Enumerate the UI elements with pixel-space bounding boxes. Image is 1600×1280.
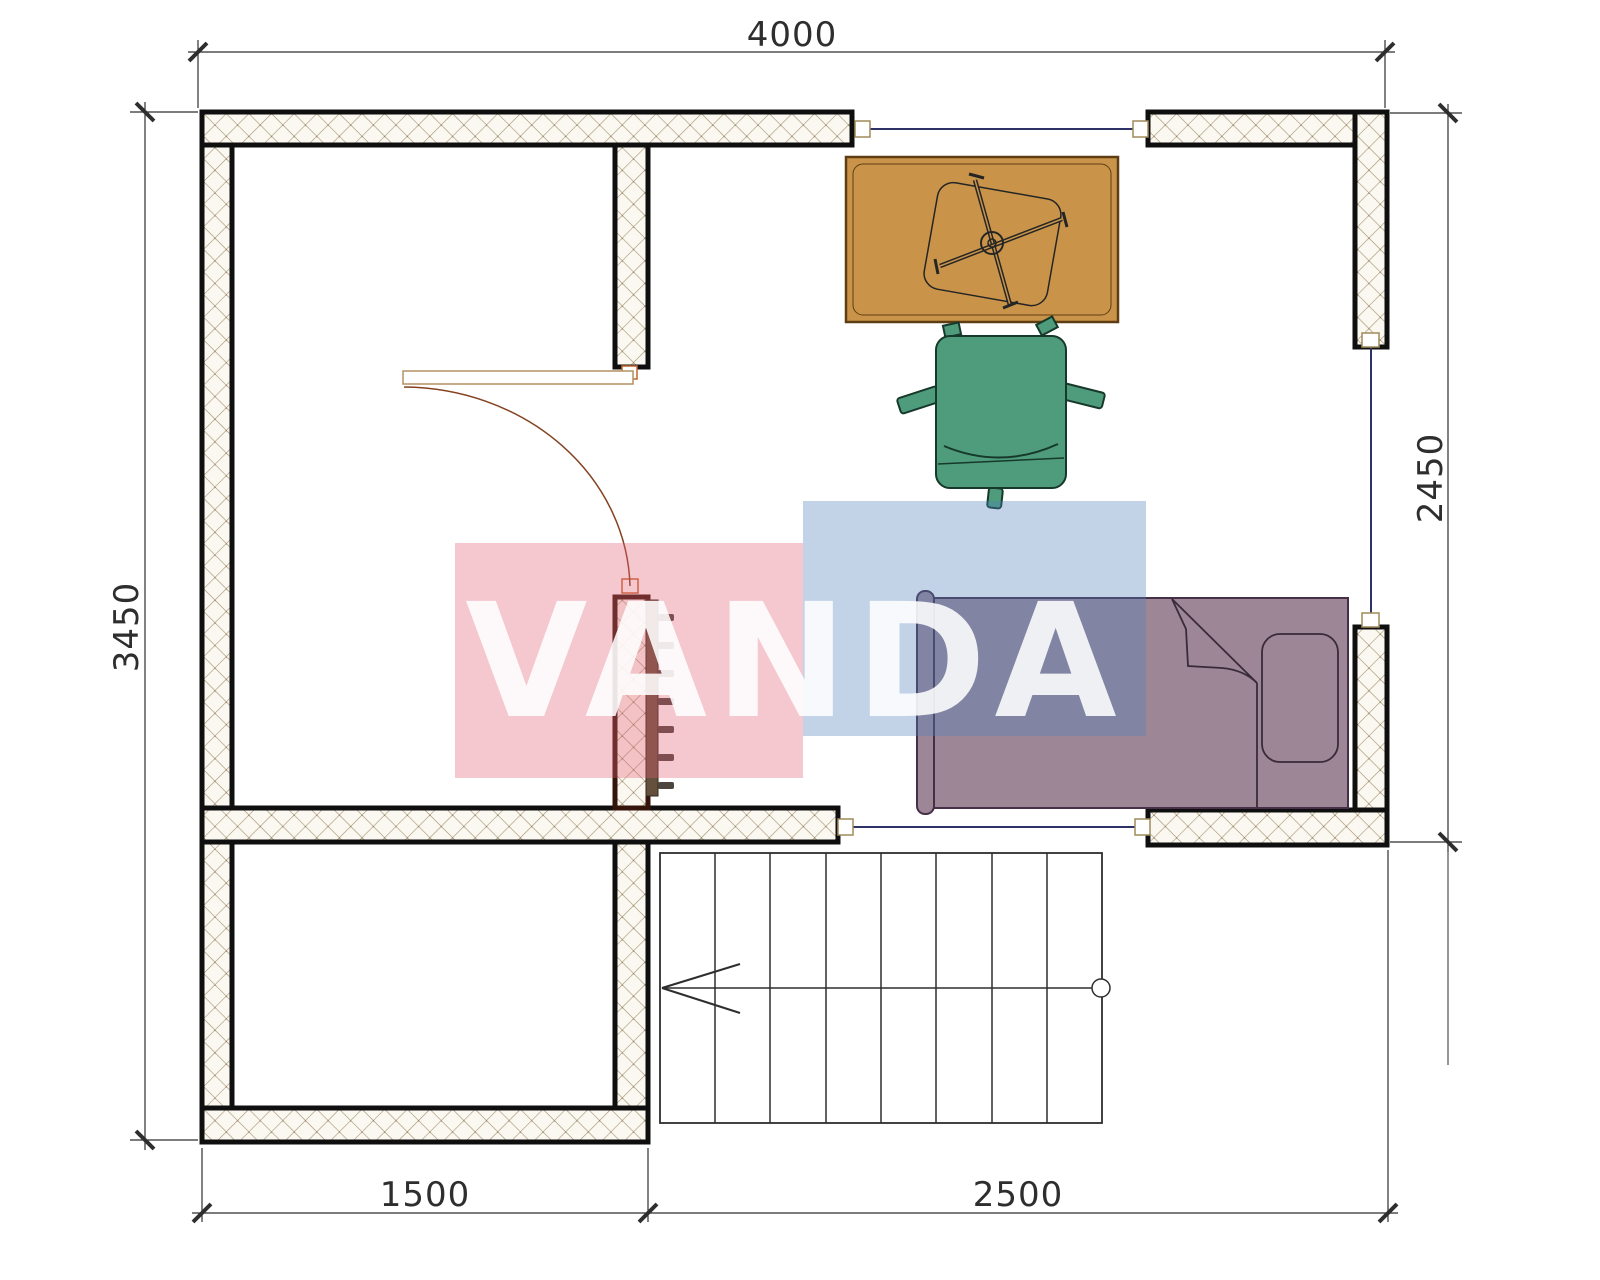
dimension-right: 2450: [1390, 104, 1462, 1065]
wall-exterior-left: [202, 112, 232, 1142]
wall-partition-upper: [615, 145, 648, 367]
dimension-bottom-left-label: 1500: [380, 1175, 471, 1215]
wall-middle: [202, 808, 838, 842]
dimension-left: 3450: [107, 102, 198, 1150]
armchair-body: [936, 336, 1066, 488]
staircase-start-circle: [1092, 979, 1110, 997]
window-right: [1362, 333, 1379, 627]
armchair-armrest-right: [1061, 383, 1106, 409]
floor-plan-canvas: VANDA 4000 3450 2450: [0, 0, 1600, 1280]
door-leaf: [403, 371, 633, 384]
wall-top-right: [1148, 112, 1387, 145]
armchair: [897, 316, 1106, 508]
window-top: [855, 121, 1148, 137]
wall-bottom-right: [1148, 810, 1387, 845]
wall-top-left: [202, 112, 852, 145]
window-bottom: [838, 819, 1150, 835]
dimension-bottom-right-label: 2500: [973, 1175, 1064, 1215]
dimension-top: 4000: [188, 15, 1395, 108]
wall-right-upper: [1355, 112, 1387, 347]
wall-partition-bottom: [615, 842, 648, 1108]
wall-bottom-left-room: [202, 1108, 648, 1142]
watermark: VANDA: [455, 501, 1146, 778]
staircase: [660, 853, 1110, 1123]
armchair-armrest-left: [897, 386, 942, 414]
dimension-right-label: 2450: [1411, 433, 1451, 524]
dimension-left-label: 3450: [107, 582, 147, 673]
watermark-text: VANDA: [465, 570, 1125, 754]
floor-plan-page: VANDA 4000 3450 2450: [0, 0, 1600, 1280]
dimension-top-label: 4000: [747, 15, 838, 55]
